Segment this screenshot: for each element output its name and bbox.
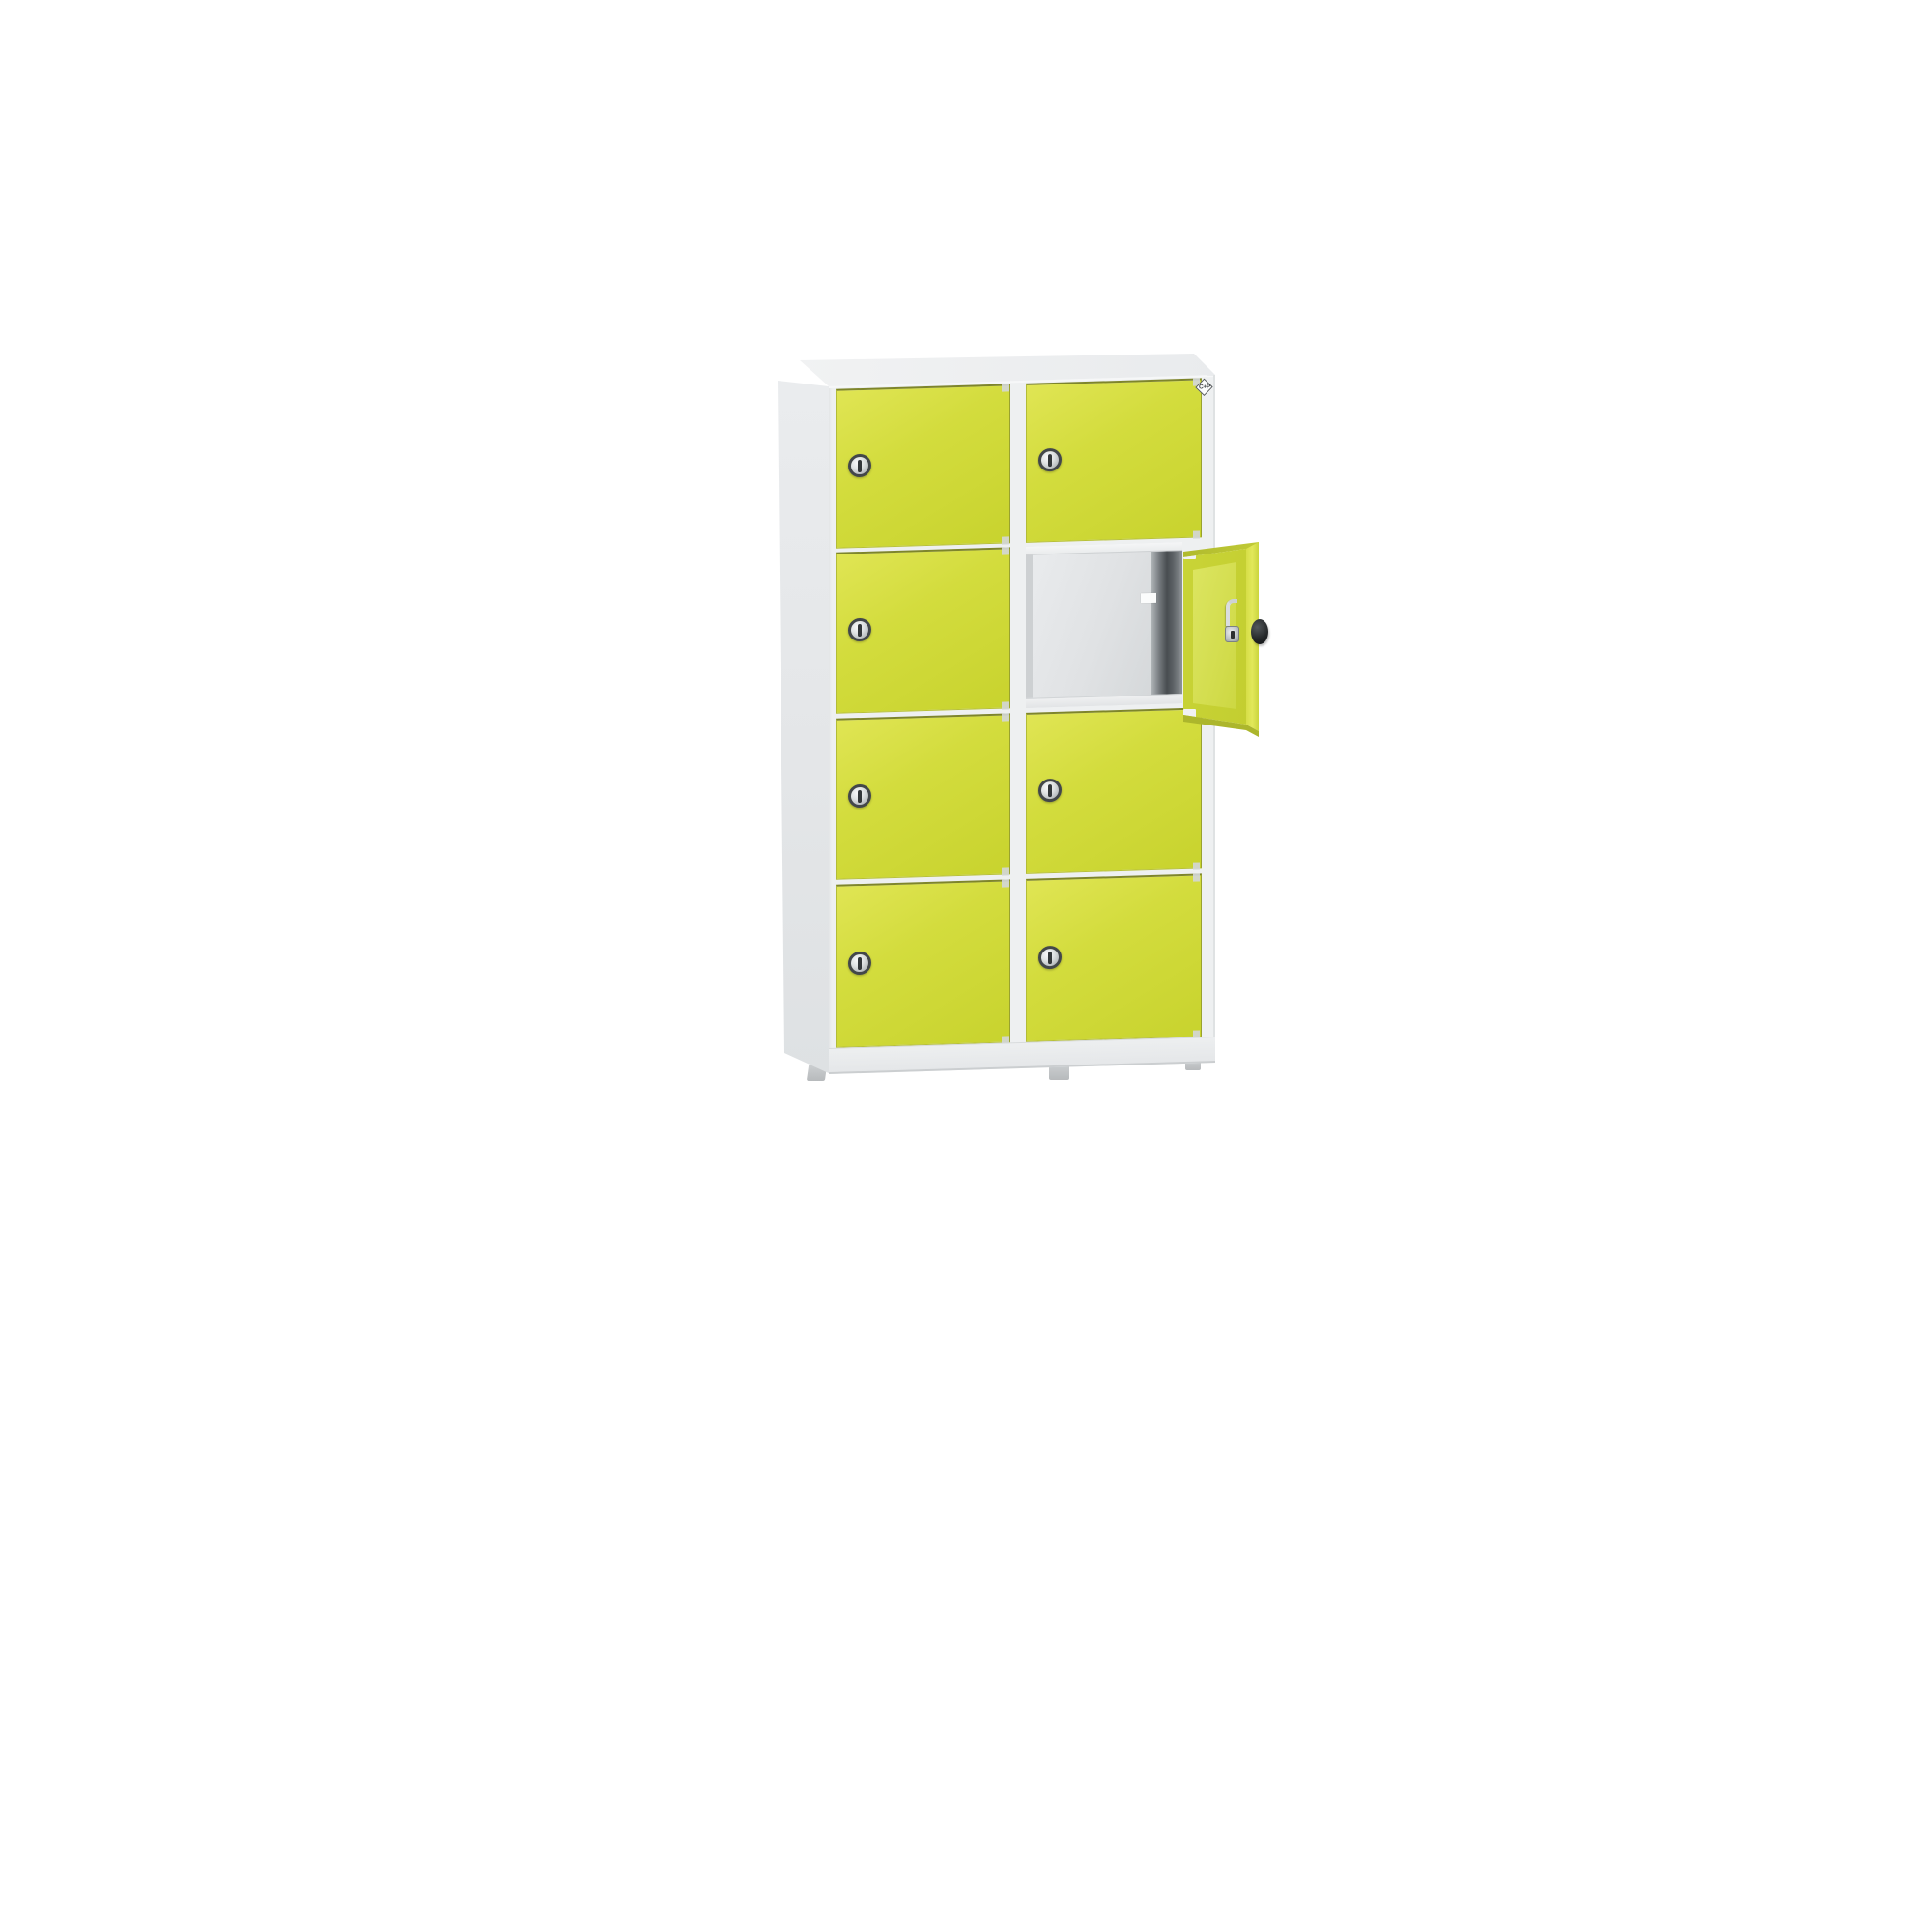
keyhole-slot-icon	[1231, 631, 1235, 639]
lock-body-icon	[1225, 626, 1239, 642]
compartment-left-wall	[1026, 555, 1033, 698]
lock-cylinder-icon	[1038, 779, 1062, 803]
keyhole-slot-icon	[1048, 454, 1052, 467]
keyhole-slot-icon	[858, 789, 862, 802]
hinge-tab-icon	[1002, 701, 1009, 709]
keyhole-slot-icon	[858, 956, 862, 969]
hinge-tab-icon	[1193, 530, 1200, 538]
locker-door	[1026, 707, 1202, 873]
locker-door	[1026, 873, 1202, 1041]
locker-door	[836, 547, 1010, 713]
cabinet-front-face: C+P	[829, 375, 1215, 1074]
hinge-tab-icon	[1002, 547, 1009, 554]
hinge-tab-icon	[1002, 713, 1009, 721]
lock-cylinder-icon	[1038, 448, 1062, 472]
compartment-back-wall	[1033, 552, 1151, 698]
keyhole-slot-icon	[1048, 952, 1052, 964]
brand-logo: C+P	[1193, 379, 1216, 397]
locker-door	[1026, 378, 1202, 542]
locker-door	[836, 713, 1010, 879]
lock-cylinder-icon	[848, 784, 871, 809]
hinge-tab-icon	[1002, 536, 1009, 544]
hinge-tab-icon	[1002, 384, 1009, 391]
cabinet-left-side-panel	[773, 377, 833, 1076]
logo-text: C+P	[1199, 384, 1210, 391]
compartment-sticker	[1141, 593, 1156, 603]
hinge-tab-icon	[1193, 873, 1200, 881]
hinge-tab-icon	[1002, 867, 1009, 875]
hinge-tab-icon	[1193, 862, 1200, 869]
door-knob-icon	[1251, 619, 1268, 644]
lock-cylinder-icon	[848, 952, 871, 976]
keyhole-slot-icon	[858, 459, 862, 471]
keyhole-slot-icon	[858, 623, 862, 636]
product-photo-scene: C+P	[0, 0, 1932, 1932]
keyhole-slot-icon	[1048, 784, 1052, 797]
open-compartment	[1026, 542, 1182, 708]
latch-hook-icon	[1226, 599, 1237, 626]
lock-cylinder-icon	[848, 454, 871, 478]
lock-cylinder-icon	[1038, 946, 1062, 970]
hinge-tab-icon	[1002, 879, 1009, 887]
compartment-right-wall	[1151, 551, 1182, 695]
lock-cylinder-icon	[848, 618, 871, 642]
locker-door	[836, 384, 1010, 548]
locker-door	[836, 879, 1010, 1047]
open-door-inner-face	[1183, 547, 1246, 730]
